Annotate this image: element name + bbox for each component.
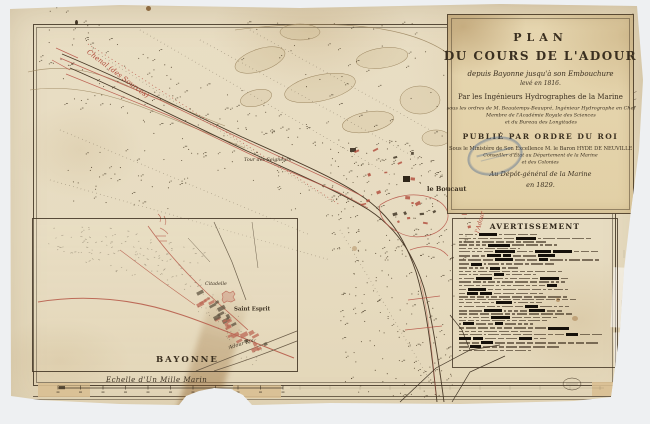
notice-text-line xyxy=(459,313,611,314)
notice-text-line xyxy=(459,320,611,321)
notice-text-line xyxy=(459,241,611,242)
avertissement-text-lines xyxy=(458,233,612,351)
ink-speck xyxy=(75,20,78,25)
notice-text-line xyxy=(459,271,611,272)
notice-text-line xyxy=(459,316,611,319)
notice-text-line xyxy=(459,258,611,261)
notice-text-line xyxy=(459,281,611,282)
foxing-spot xyxy=(352,246,357,251)
surveyors-line: Par les Ingénieurs Hydrographes de la Ma… xyxy=(458,93,623,101)
notice-text-line xyxy=(459,322,611,325)
notice-text-line xyxy=(459,267,611,270)
scanned-chart-photo: PLAN DU COURS DE L'ADOUR depuis Bayonne … xyxy=(0,0,650,424)
notice-text-line xyxy=(459,327,611,330)
bottom-margin-rule-2 xyxy=(33,399,611,400)
notice-text-line xyxy=(459,350,611,351)
le-boucaut-label: le Boucaut xyxy=(427,185,466,193)
notice-text-line xyxy=(459,305,611,308)
scale-bar xyxy=(57,386,605,393)
notice-text-line xyxy=(459,345,611,348)
notice-text-line xyxy=(459,244,611,247)
notice-text-line xyxy=(459,288,611,291)
chart-paper-sheet: PLAN DU COURS DE L'ADOUR depuis Bayonne … xyxy=(0,0,650,424)
scale-bar-label: Echelle d'Un Mille Marin xyxy=(106,376,207,384)
minister-title: et des Colonies xyxy=(522,160,559,166)
notice-text-line xyxy=(459,292,611,295)
notice-text-line xyxy=(459,277,611,280)
citadelle-label: Citadelle xyxy=(205,281,227,287)
notice-text-line xyxy=(459,337,611,340)
avertissement-panel: AVERTISSEMENT xyxy=(452,218,618,368)
notice-text-line xyxy=(459,296,611,297)
ink-speck xyxy=(146,6,151,11)
credit-line: et du Bureau des Longitudes xyxy=(504,120,576,126)
bayonne-label: BAYONNE xyxy=(156,355,219,365)
notice-text-line xyxy=(459,273,611,276)
notice-text-line xyxy=(459,237,611,240)
repair-patch xyxy=(233,385,281,398)
notice-text-line xyxy=(459,250,611,253)
notice-text-line xyxy=(459,263,611,266)
repair-patch xyxy=(592,382,642,396)
notice-text-line xyxy=(459,309,611,312)
notice-text-line xyxy=(459,301,611,304)
repair-patch xyxy=(38,383,90,397)
map-subtitle: depuis Bayonne jusqu'à son Embouchure xyxy=(467,70,613,78)
saint-esprit-label: Saint Esprit xyxy=(234,306,270,312)
notice-text-line xyxy=(459,299,611,300)
tour-des-seigneurs-label: Tour des Seigneurs xyxy=(244,157,291,163)
bayonne-inset-frame xyxy=(32,218,298,372)
survey-date: levé en 1816. xyxy=(520,80,561,87)
bottom-margin-rule xyxy=(33,396,611,397)
notice-text-line xyxy=(459,254,611,257)
notice-text-line xyxy=(459,284,611,287)
map-title-line: DU COURS DE L'ADOUR xyxy=(444,49,637,63)
notice-text-line xyxy=(459,248,611,249)
title-cartouche-inner: PLAN DU COURS DE L'ADOUR depuis Bayonne … xyxy=(451,18,630,210)
publication-year: en 1829. xyxy=(526,181,555,189)
notice-text-line xyxy=(459,233,611,236)
map-title-line: PLAN xyxy=(513,31,568,44)
credit-line: sous les ordres de M. Beautemps-Beaupré,… xyxy=(446,106,635,112)
notice-text-line xyxy=(459,331,611,332)
notice-text-line xyxy=(459,341,611,344)
notice-text-line xyxy=(459,333,611,336)
title-cartouche: PLAN DU COURS DE L'ADOUR depuis Bayonne … xyxy=(447,14,634,214)
credit-line: Membre de l'Académie Royale des Sciences xyxy=(486,113,596,119)
